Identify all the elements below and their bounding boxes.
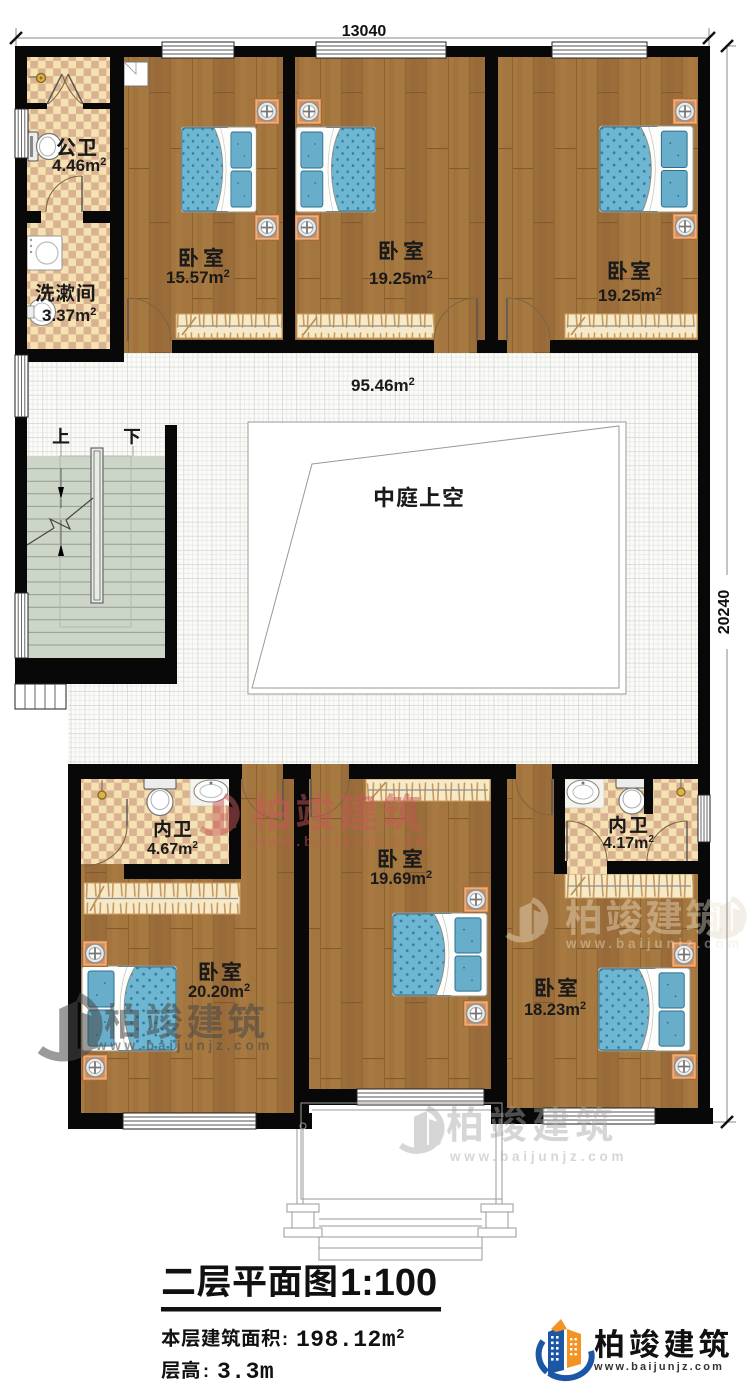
- svg-text:95.46m2: 95.46m2: [351, 376, 415, 395]
- svg-text:www.baijunjz.com: www.baijunjz.com: [449, 1149, 627, 1164]
- svg-text:www.baijunjz.com: www.baijunjz.com: [253, 834, 431, 849]
- svg-text:19.69m2: 19.69m2: [370, 869, 432, 888]
- svg-text:19.25m2: 19.25m2: [598, 286, 662, 305]
- svg-text:4.67m2: 4.67m2: [147, 840, 198, 858]
- svg-text:3.37m2: 3.37m2: [42, 306, 96, 325]
- svg-text:19.25m2: 19.25m2: [369, 269, 433, 288]
- svg-text::: :: [282, 1329, 288, 1349]
- svg-text:18.23m2: 18.23m2: [524, 1000, 586, 1019]
- svg-text:13040: 13040: [342, 23, 387, 40]
- svg-text::: :: [203, 1361, 209, 1381]
- svg-text:4.46m2: 4.46m2: [52, 156, 106, 175]
- svg-text:15.57m2: 15.57m2: [166, 268, 230, 287]
- svg-text:www.baijunjz.com: www.baijunjz.com: [593, 1361, 724, 1373]
- svg-text:1:100: 1:100: [340, 1262, 437, 1304]
- svg-text:20240: 20240: [716, 590, 733, 635]
- svg-text:4.17m2: 4.17m2: [603, 834, 654, 852]
- svg-text:www.baijunjz.com: www.baijunjz.com: [95, 1038, 273, 1053]
- svg-text:3.3m: 3.3m: [217, 1359, 274, 1385]
- svg-text:20.20m2: 20.20m2: [188, 982, 250, 1001]
- svg-text:198.12m2: 198.12m2: [296, 1327, 405, 1353]
